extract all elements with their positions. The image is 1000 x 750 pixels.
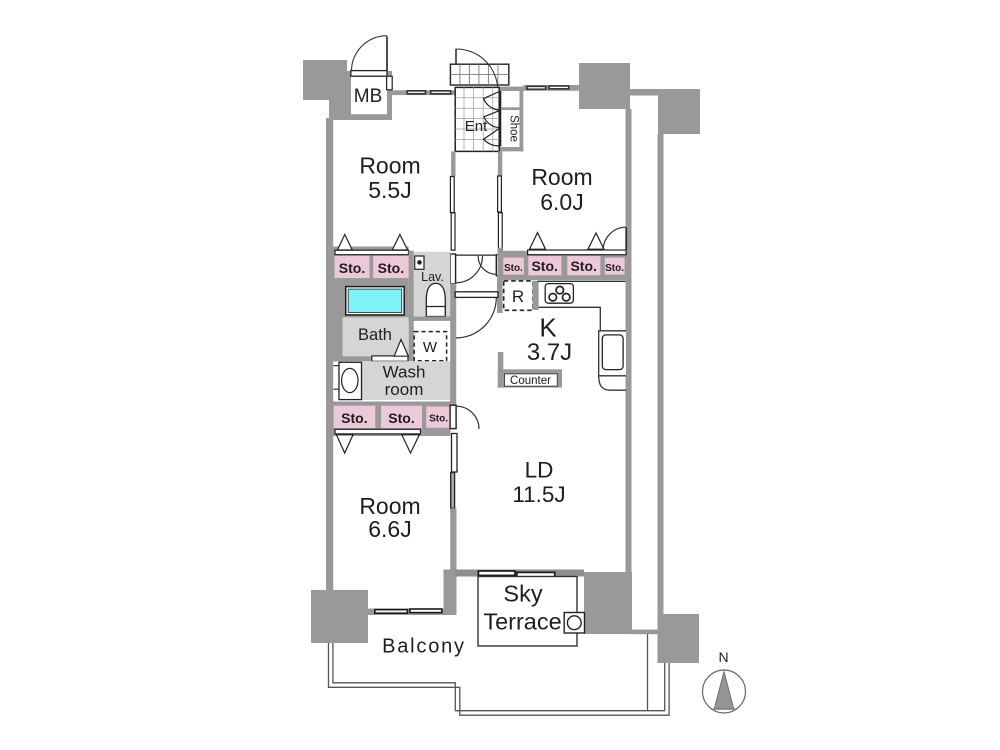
svg-text:Lav.: Lav. <box>421 270 444 284</box>
svg-text:room: room <box>385 380 424 399</box>
svg-text:W: W <box>423 339 438 356</box>
svg-text:6.0J: 6.0J <box>540 189 583 215</box>
svg-text:Ent: Ent <box>465 118 488 135</box>
svg-text:Sto.: Sto. <box>341 410 367 426</box>
svg-text:LD: LD <box>525 458 554 483</box>
svg-text:Sto.: Sto. <box>429 413 448 424</box>
svg-text:Counter: Counter <box>510 375 551 387</box>
svg-text:Bath: Bath <box>358 326 392 344</box>
svg-text:6.6J: 6.6J <box>368 516 411 542</box>
svg-text:3.7J: 3.7J <box>527 339 572 366</box>
svg-text:Room: Room <box>359 153 420 179</box>
svg-text:R: R <box>512 287 524 306</box>
svg-text:Sto.: Sto. <box>388 410 414 426</box>
svg-text:N: N <box>718 649 728 665</box>
svg-text:Shoe: Shoe <box>508 115 520 142</box>
svg-text:MB: MB <box>354 86 383 107</box>
svg-text:Balcony: Balcony <box>382 636 466 658</box>
svg-text:Sto.: Sto. <box>339 260 365 276</box>
svg-text:5.5J: 5.5J <box>368 177 411 203</box>
svg-text:Room: Room <box>531 164 592 190</box>
svg-text:Sto.: Sto. <box>570 258 596 274</box>
svg-text:Sto.: Sto. <box>605 263 624 274</box>
svg-text:K: K <box>539 313 557 343</box>
svg-text:Sto.: Sto. <box>504 263 523 274</box>
svg-text:Sto.: Sto. <box>378 260 404 276</box>
svg-text:Terrace: Terrace <box>483 609 561 635</box>
svg-text:Sky: Sky <box>503 581 542 607</box>
svg-text:Sto.: Sto. <box>531 258 557 274</box>
svg-text:Wash: Wash <box>383 363 426 382</box>
svg-text:11.5J: 11.5J <box>512 482 565 507</box>
